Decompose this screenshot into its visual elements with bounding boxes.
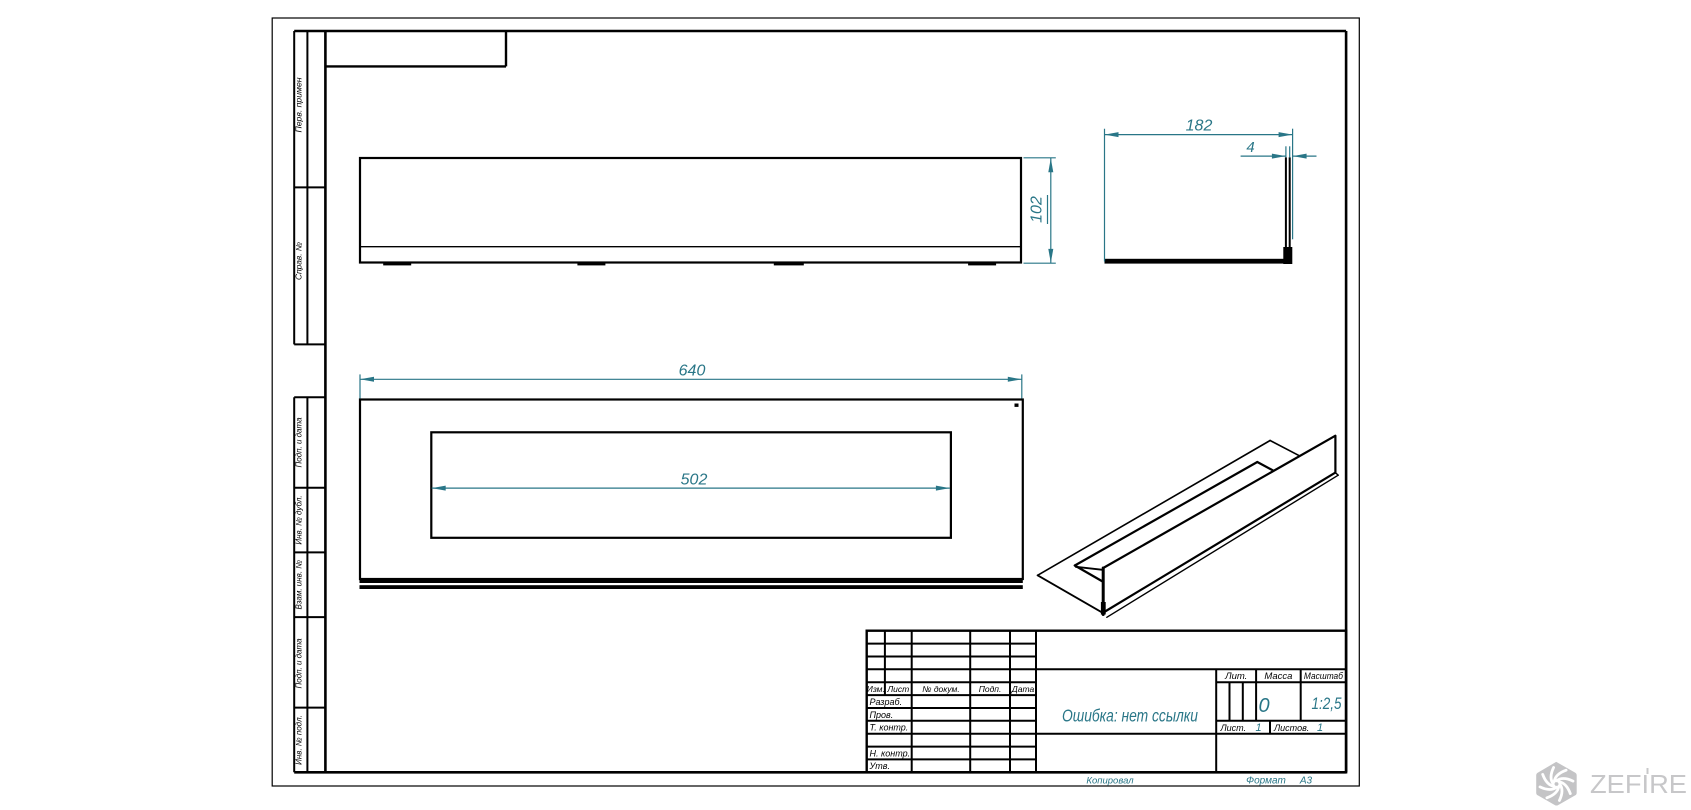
- svg-text:Утв.: Утв.: [869, 761, 890, 771]
- svg-text:Взам. инв. №: Взам. инв. №: [295, 560, 304, 610]
- svg-text:ZEFIRE: ZEFIRE: [1590, 769, 1687, 799]
- svg-text:1: 1: [1255, 722, 1261, 734]
- svg-text:Лит.: Лит.: [1224, 671, 1247, 682]
- svg-text:1: 1: [1317, 722, 1323, 734]
- svg-text:Подп.: Подп.: [979, 684, 1002, 694]
- svg-text:1:2,5: 1:2,5: [1312, 695, 1343, 713]
- svg-text:Дата: Дата: [1011, 684, 1035, 694]
- svg-text:Лист: Лист: [886, 684, 909, 694]
- svg-text:Масштаб: Масштаб: [1304, 671, 1344, 682]
- svg-text:Перв. примен: Перв. примен: [295, 77, 304, 133]
- svg-text:Н. контр.: Н. контр.: [870, 748, 911, 758]
- svg-text:Изм.: Изм.: [867, 684, 885, 694]
- svg-text:Пров.: Пров.: [870, 710, 894, 720]
- svg-text:102: 102: [1029, 196, 1046, 223]
- svg-text:Ошибка: нет ссылки: Ошибка: нет ссылки: [1062, 706, 1198, 726]
- svg-text:Лист.: Лист.: [1220, 723, 1247, 733]
- svg-text:Подп. и дата: Подп. и дата: [295, 638, 304, 689]
- svg-text:640: 640: [679, 363, 706, 380]
- svg-text:Инв. № подл.: Инв. № подл.: [295, 715, 304, 765]
- svg-text:Подп. и дата: Подп. и дата: [295, 417, 304, 468]
- svg-text:Листов.: Листов.: [1273, 723, 1309, 733]
- svg-text:502: 502: [681, 472, 708, 489]
- svg-text:4: 4: [1246, 139, 1254, 156]
- svg-text:Формат: Формат: [1246, 776, 1286, 787]
- svg-text:0: 0: [1258, 695, 1269, 717]
- svg-text:Разраб.: Разраб.: [870, 697, 903, 707]
- svg-text:182: 182: [1186, 118, 1213, 135]
- svg-text:№ докум.: № докум.: [922, 684, 959, 694]
- svg-text:А3: А3: [1299, 776, 1313, 787]
- svg-text:Т. контр.: Т. контр.: [870, 723, 909, 733]
- svg-text:Масса: Масса: [1264, 671, 1292, 682]
- svg-text:Справ. №: Справ. №: [295, 242, 304, 280]
- svg-text:Инв. № дубл.: Инв. № дубл.: [295, 495, 304, 544]
- svg-text:Копировал: Копировал: [1086, 776, 1134, 787]
